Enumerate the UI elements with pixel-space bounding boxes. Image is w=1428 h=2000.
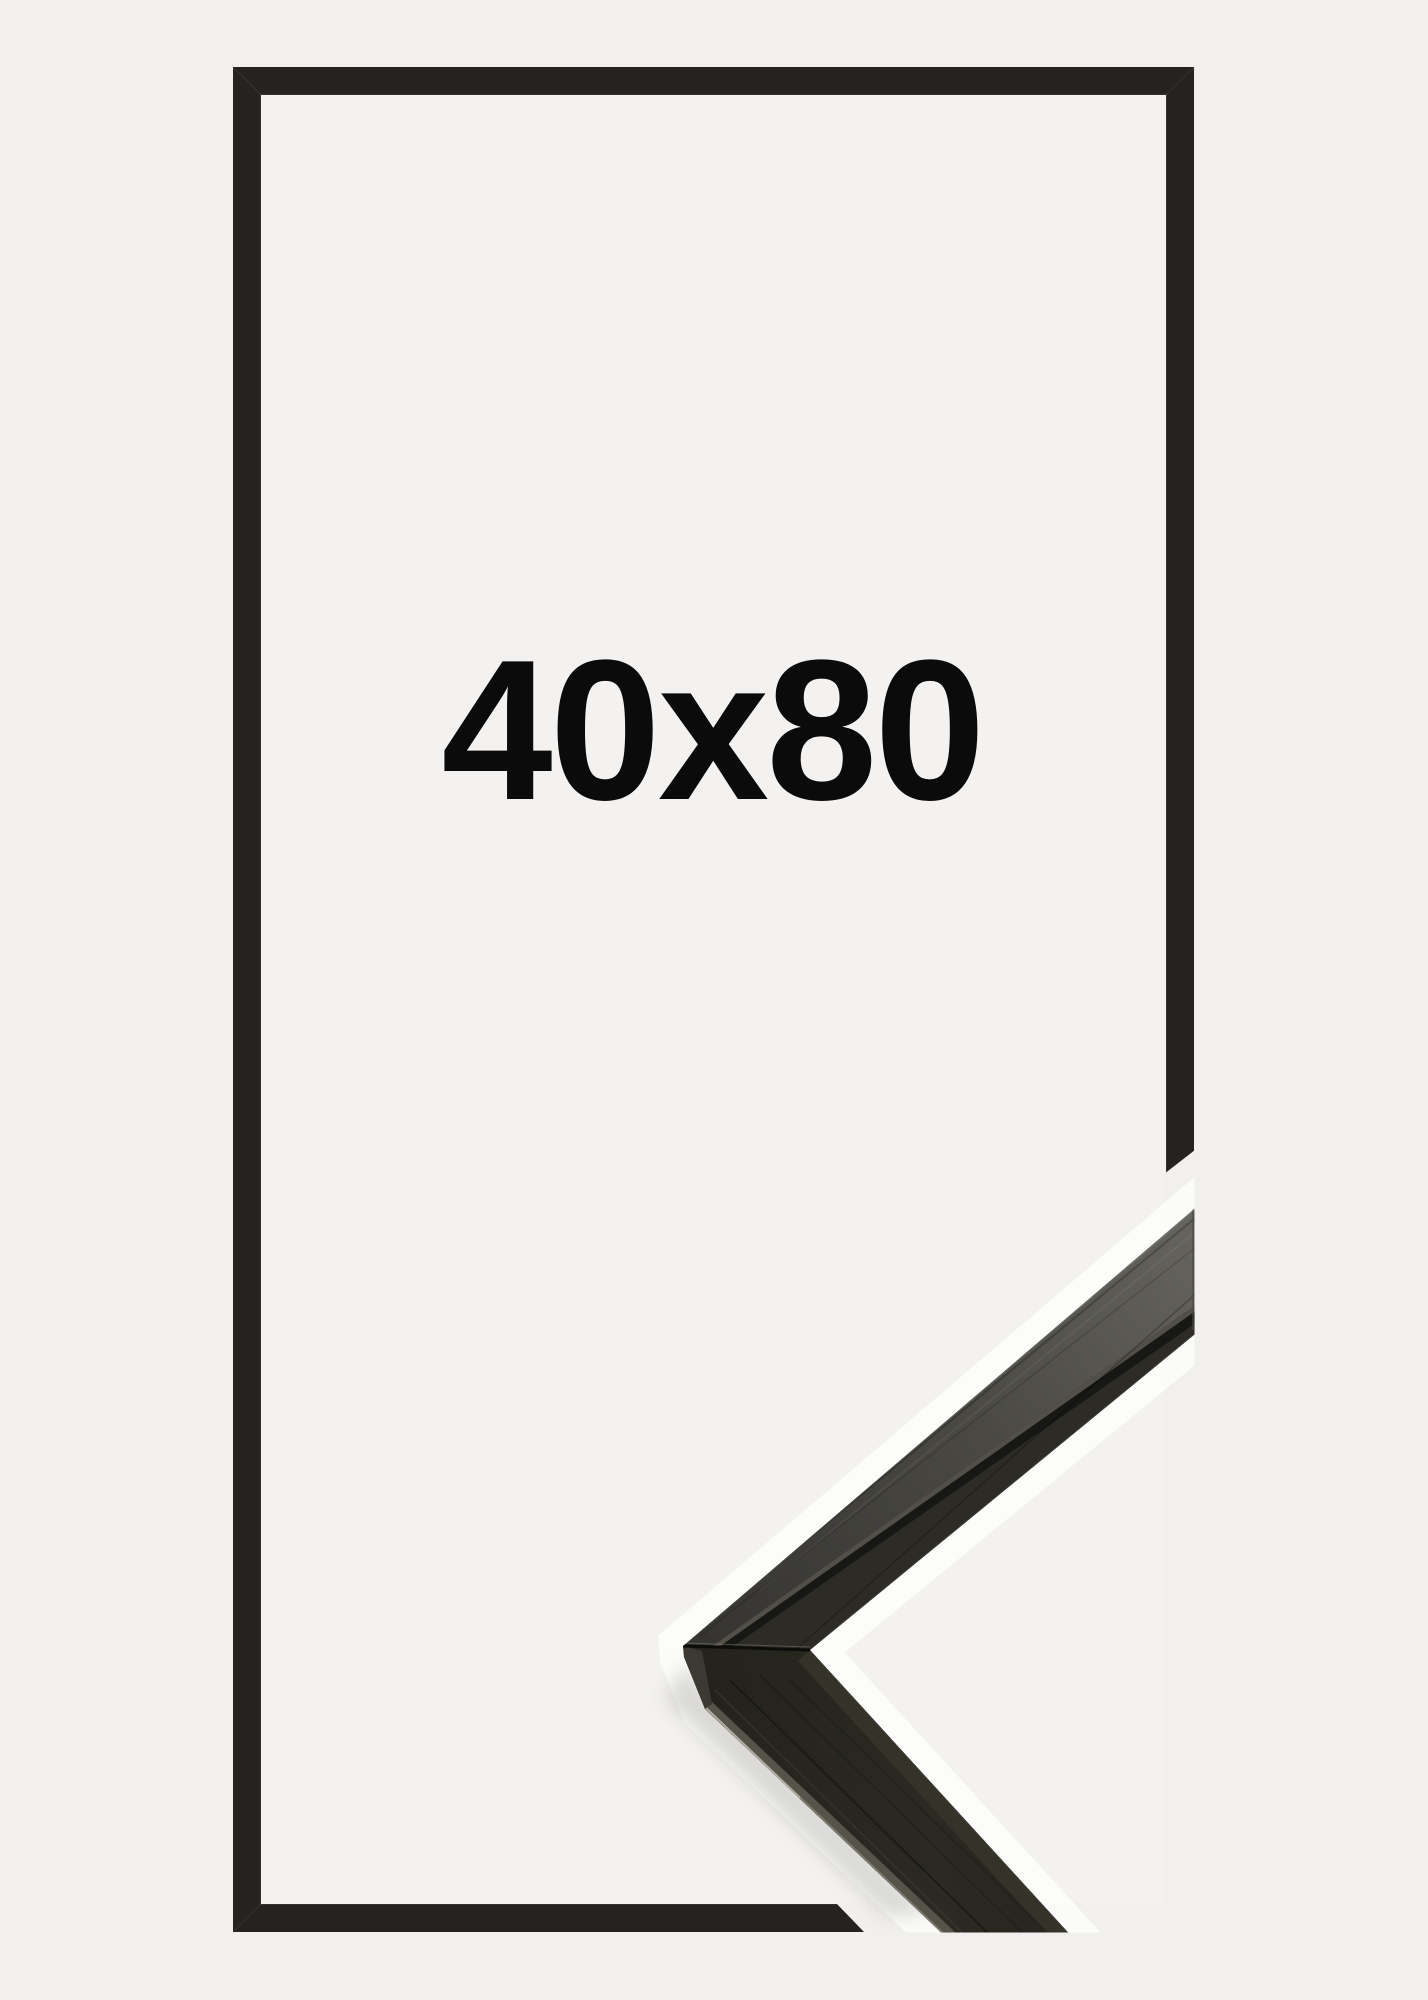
size-label: 40x80: [441, 619, 982, 842]
frame-product-graphic: 40x80: [0, 0, 1428, 2000]
product-image-frame-mockup: 40x80: [0, 0, 1428, 2000]
